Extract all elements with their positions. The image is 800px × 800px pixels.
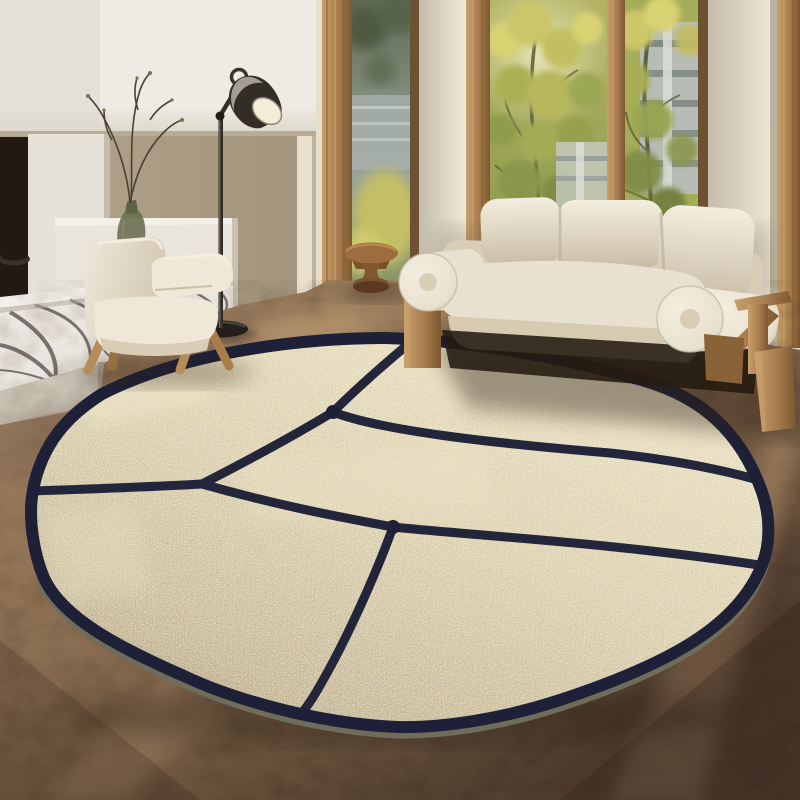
armchair-armrest xyxy=(152,253,234,297)
rug-light-patch xyxy=(230,446,502,522)
scene-canvas xyxy=(0,0,800,800)
sofa-cushion-middle xyxy=(557,200,663,268)
sofa-cushion-left xyxy=(480,197,562,266)
sofa-left-bolster xyxy=(399,249,484,311)
sofa-right-foot-inner xyxy=(704,334,744,384)
lamp-joint xyxy=(216,112,225,121)
living-room-photo: Round cream rug with navy abstract lines… xyxy=(0,0,800,800)
window-mullion-1 xyxy=(410,0,419,286)
lamp-pole-highlight xyxy=(219,114,220,328)
window-frame-column-1 xyxy=(322,0,352,290)
